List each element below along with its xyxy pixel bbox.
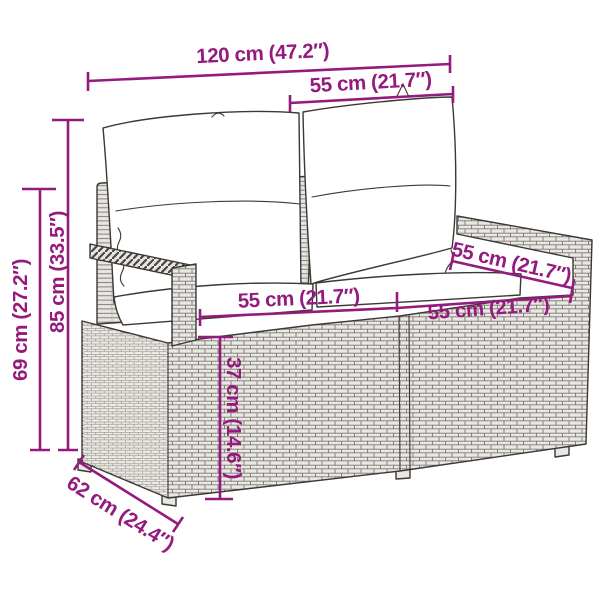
sofa-dimension-drawing: 120 cm (47.2″) 55 cm (21.7″) 85 cm (33.5…: [0, 0, 600, 600]
dimension-label-seat-height: 37 cm (14.6″): [222, 357, 245, 479]
back-cushion-right: [303, 84, 456, 284]
dimension-total-height: 85 cm (33.5″): [46, 120, 84, 450]
dimension-label-armrest-height: 69 cm (27.2″): [9, 259, 32, 381]
dimension-label-back-cushion-width: 55 cm (21.7″): [309, 68, 432, 98]
back-cushion-left: [103, 111, 301, 303]
dimension-label-total-width: 120 cm (47.2″): [196, 39, 330, 68]
dimension-diagram: 120 cm (47.2″) 55 cm (21.7″) 85 cm (33.5…: [0, 0, 600, 600]
sofa-base-left-side-face: [84, 323, 167, 497]
dimension-label-total-height: 85 cm (33.5″): [46, 211, 69, 333]
left-armrest-front-post: [172, 264, 196, 346]
dimension-label-seat-width-left: 55 cm (21.7″): [237, 284, 360, 313]
